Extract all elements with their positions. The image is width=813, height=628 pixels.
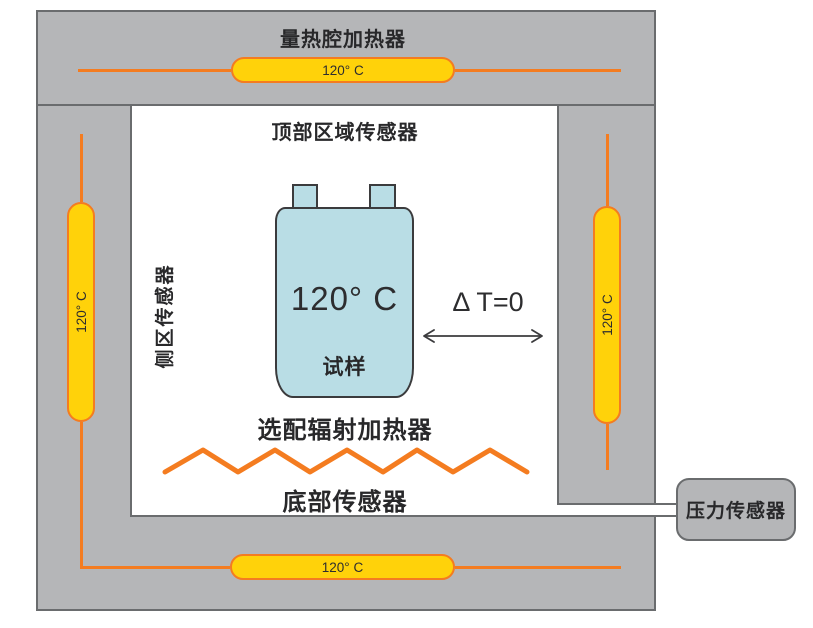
specimen-temperature: 120° C [275,280,414,318]
bottom-heater: 120° C [230,554,455,580]
bottom-sensor-label: 底部传感器 [131,482,559,517]
left-heater-wire-bottom [80,422,83,569]
optional-radiant-heater-label: 选配辐射加热器 [131,410,559,445]
radiant-heater-zigzag [160,443,535,481]
right-heater-temperature: 120° C [597,205,617,425]
chamber-heater-label: 量热腔加热器 [231,23,455,52]
specimen-label: 试样 [275,351,414,381]
bottom-heater-wire-right [455,566,621,569]
right-heater-wire-bottom [606,424,609,470]
delta-t-label: Δ T=0 [428,287,548,318]
pressure-sensor-label: 压力传感器 [686,496,786,523]
left-heater-temperature: 120° C [71,202,91,422]
side-zone-sensor-label: 侧区传感器 [153,206,173,426]
top-heater-temperature: 120° C [322,63,363,78]
calorimeter-diagram: 量热腔加热器 120° C 120° C 120° C 120° C 顶部区域传… [0,0,813,628]
pressure-sensor-box: 压力传感器 [676,478,796,541]
bottom-heater-wire-left [80,566,230,569]
top-heater-wire-right [455,69,621,72]
top-zone-sensor-label: 顶部区域传感器 [131,116,559,145]
top-heater: 120° C [231,57,455,83]
left-heater-wire-top [80,134,83,202]
pressure-port-slot [557,503,679,517]
delta-t-arrow [420,328,546,344]
right-heater-wire-top [606,134,609,206]
bottom-heater-temperature: 120° C [322,560,363,575]
top-heater-wire-left [78,69,231,72]
